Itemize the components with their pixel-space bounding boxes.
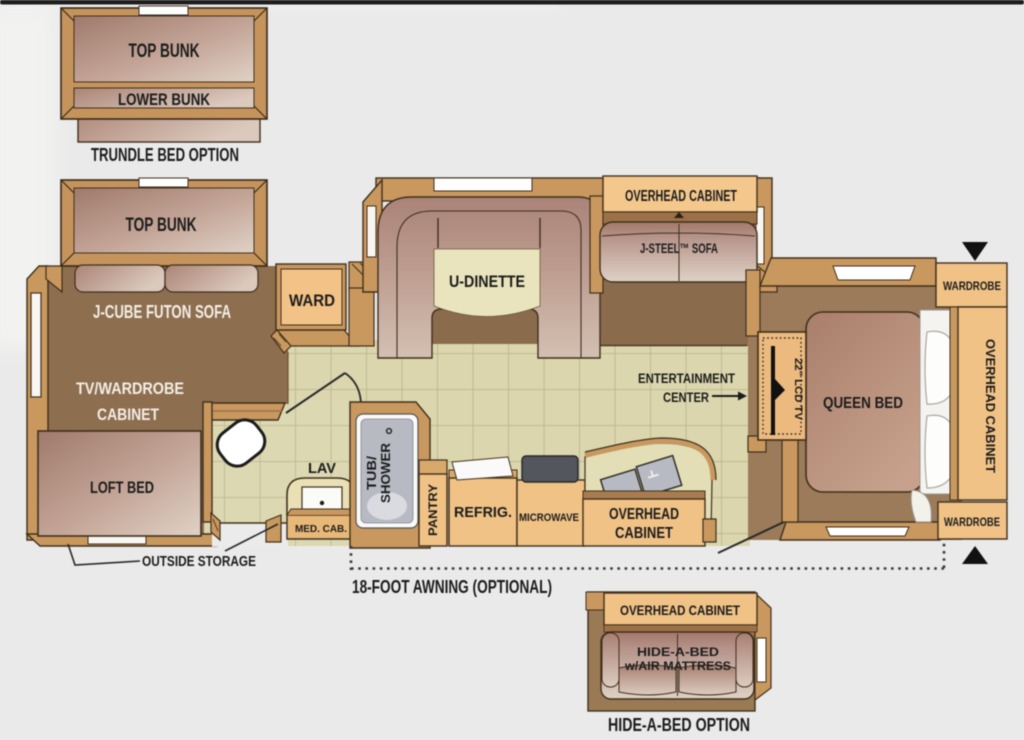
svg-text:SHOWER: SHOWER: [379, 443, 393, 503]
svg-text:REFRIG.: REFRIG.: [454, 504, 512, 521]
svg-text:J-CUBE FUTON SOFA: J-CUBE FUTON SOFA: [93, 302, 231, 322]
svg-text:CENTER: CENTER: [663, 390, 709, 405]
svg-text:22" LCD TV: 22" LCD TV: [792, 358, 804, 421]
svg-text:MED. CAB.: MED. CAB.: [295, 524, 347, 535]
svg-text:WARDROBE: WARDROBE: [943, 281, 1001, 293]
svg-text:OVERHEAD CABINET: OVERHEAD CABINET: [620, 602, 740, 618]
svg-text:TOP BUNK: TOP BUNK: [129, 41, 200, 62]
svg-text:HIDE-A-BED OPTION: HIDE-A-BED OPTION: [608, 715, 750, 735]
svg-text:CABINET: CABINET: [615, 525, 673, 542]
svg-text:TRUNDLE BED OPTION: TRUNDLE BED OPTION: [91, 145, 239, 165]
svg-text:OVERHEAD CABINET: OVERHEAD CABINET: [983, 339, 998, 473]
svg-text:18-FOOT AWNING (OPTIONAL): 18-FOOT AWNING (OPTIONAL): [352, 577, 552, 597]
svg-text:ENTERTAINMENT: ENTERTAINMENT: [638, 371, 736, 386]
svg-text:OUTSIDE STORAGE: OUTSIDE STORAGE: [142, 553, 256, 570]
svg-text:OVERHEAD: OVERHEAD: [609, 506, 679, 523]
svg-text:J-STEEL™ SOFA: J-STEEL™ SOFA: [640, 241, 718, 256]
svg-text:TUB/: TUB/: [365, 455, 379, 490]
svg-text:TOP BUNK: TOP BUNK: [126, 215, 197, 236]
svg-text:CABINET: CABINET: [97, 405, 159, 424]
svg-text:LAV: LAV: [308, 460, 336, 477]
svg-text:MICROWAVE: MICROWAVE: [519, 512, 579, 524]
svg-text:QUEEN BED: QUEEN BED: [823, 395, 903, 412]
svg-text:U-DINETTE: U-DINETTE: [449, 272, 525, 291]
svg-text:WARD: WARD: [289, 291, 335, 310]
svg-text:HIDE-A-BED: HIDE-A-BED: [637, 645, 719, 659]
svg-text:LOFT BED: LOFT BED: [90, 478, 154, 497]
svg-text:OVERHEAD CABINET: OVERHEAD CABINET: [625, 188, 737, 205]
svg-text:LOWER BUNK: LOWER BUNK: [118, 90, 211, 109]
svg-text:w/AIR MATTRESS: w/AIR MATTRESS: [624, 659, 731, 673]
svg-text:WARDROBE: WARDROBE: [944, 517, 1000, 529]
svg-text:TV/WARDROBE: TV/WARDROBE: [76, 379, 184, 398]
svg-text:PANTRY: PANTRY: [426, 484, 440, 536]
